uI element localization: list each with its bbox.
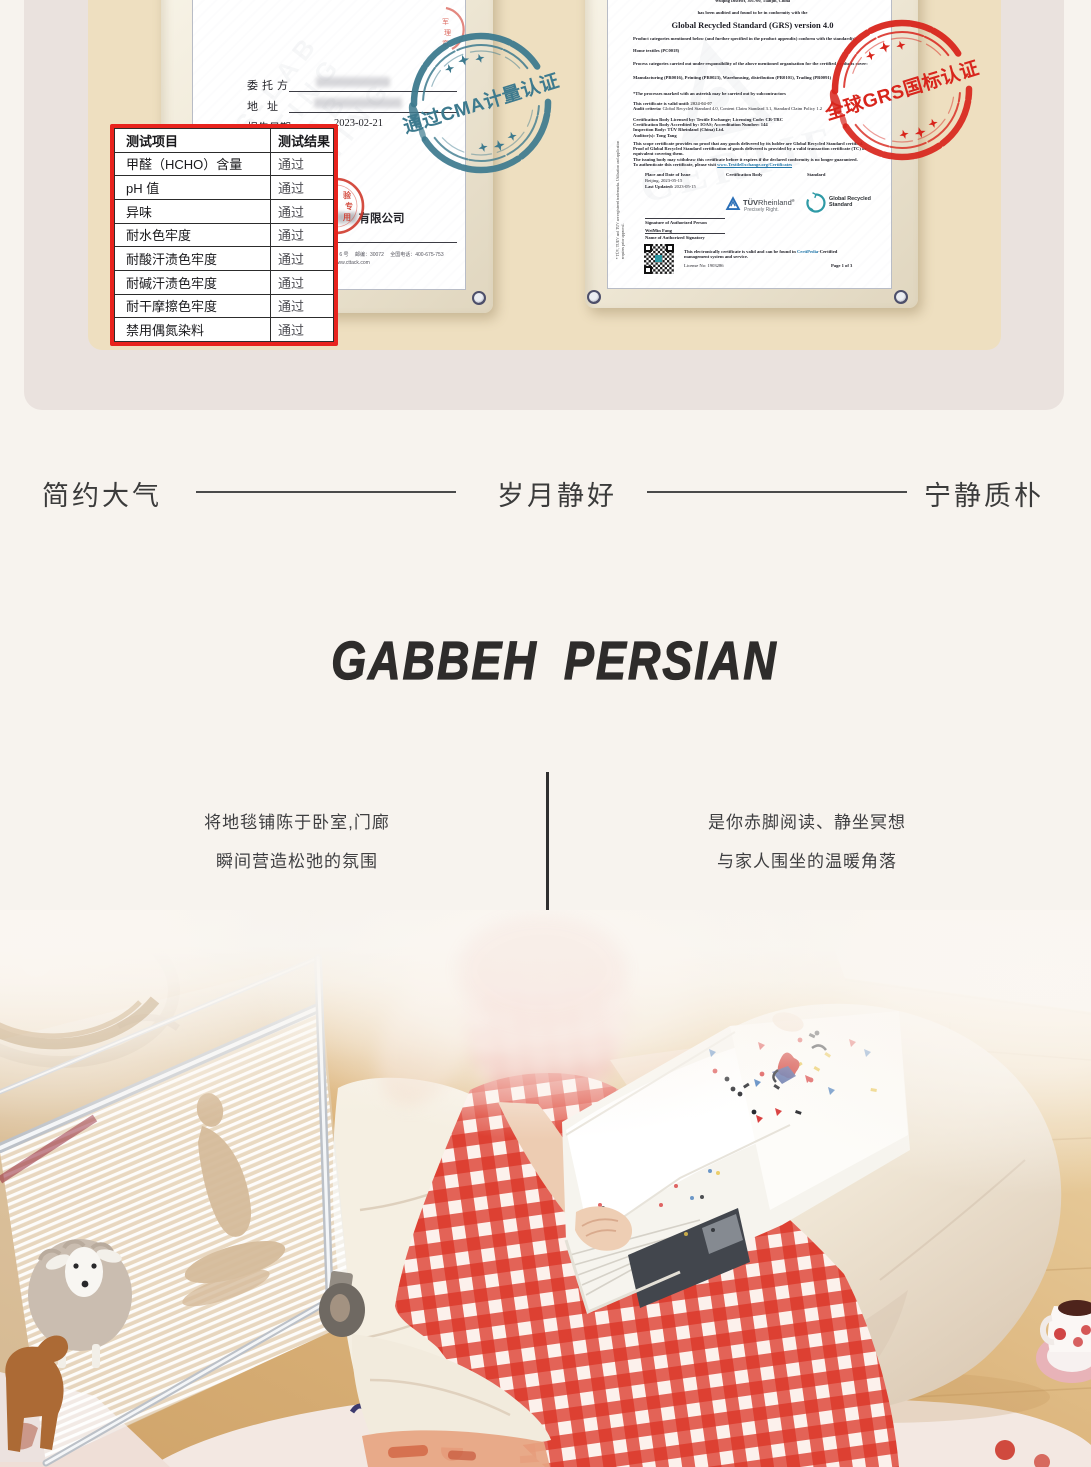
svg-text:验: 验 [343,190,352,200]
svg-text:专: 专 [345,201,353,211]
svg-text:用: 用 [342,213,351,222]
svg-text:全球GRS国标认证: 全球GRS国标认证 [821,56,981,125]
svg-text:通过CMA计量认证: 通过CMA计量认证 [400,69,561,138]
